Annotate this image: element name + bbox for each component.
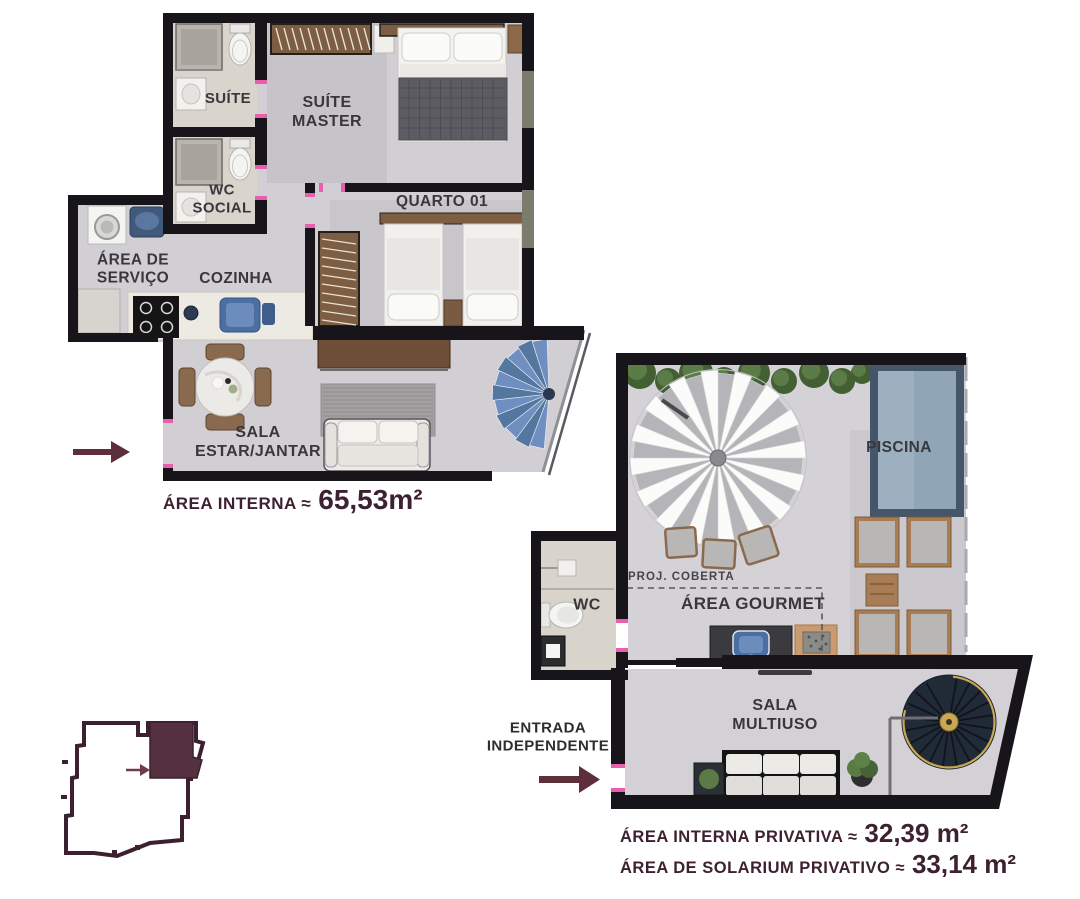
room-label-suite-master: SUÍTE MASTER xyxy=(292,94,362,132)
pillow xyxy=(402,33,450,61)
area-value: 65,53m² xyxy=(318,484,422,516)
pillow xyxy=(454,33,502,61)
room-label-area-gourmet: ÁREA GOURMET xyxy=(681,594,825,614)
label-line: ÁREA DE xyxy=(97,252,169,270)
door-threshold xyxy=(758,670,812,675)
area-label: ÁREA DE SOLARIUM PRIVATIVO ≈ xyxy=(620,859,905,878)
label-line: ENTRADA xyxy=(487,719,609,737)
plan1-apartment xyxy=(68,13,590,481)
pot xyxy=(184,306,198,320)
lounger-cushion xyxy=(859,521,895,563)
lounger-cushion xyxy=(859,614,895,654)
room-label-quarto: QUARTO 01 xyxy=(396,193,488,211)
plate xyxy=(212,377,224,389)
table-plant xyxy=(229,385,238,394)
label-line: SERVIÇO xyxy=(97,270,169,288)
toilet-tank xyxy=(230,24,250,33)
bed-blanket xyxy=(387,238,440,290)
shower-tray xyxy=(181,144,217,180)
plan2-entry-arrow right-arrow-icon xyxy=(539,766,600,793)
label-line: ESTAR/JANTAR xyxy=(195,443,321,462)
stair-pole-cap xyxy=(946,719,952,725)
toilet-tank xyxy=(230,139,250,148)
floorplan-poster: SUÍTE SUÍTE MASTER WC SOCIAL QUARTO 01 Á… xyxy=(0,0,1080,899)
area-label: ÁREA INTERNA ≈ xyxy=(163,494,311,514)
area-value: 33,14 m² xyxy=(912,849,1016,880)
label-proj-coberta: PROJ. COBERTA xyxy=(628,571,735,583)
label-line: SOCIAL xyxy=(192,199,251,217)
sheet-fold xyxy=(400,64,506,78)
cooktop xyxy=(133,296,179,338)
shower-tray xyxy=(181,29,217,65)
sink xyxy=(558,560,576,576)
room-label-area-servico: ÁREA DE SERVIÇO xyxy=(97,252,169,289)
sink-basin xyxy=(226,303,254,327)
dining-chair xyxy=(255,368,271,406)
kettle xyxy=(262,303,275,325)
label-line: SUÍTE xyxy=(292,94,362,113)
cabinet xyxy=(78,289,120,333)
table-plant xyxy=(699,769,719,789)
label-line: SALA xyxy=(195,424,321,443)
sink-basin xyxy=(182,84,200,104)
sofa-arm xyxy=(417,423,429,467)
room-label-wc2: WC xyxy=(573,597,600,616)
room-label-sala-multiuso: SALA MULTIUSO xyxy=(732,697,818,735)
area-value: 32,39 m² xyxy=(864,818,968,849)
sofa-cushion xyxy=(338,421,377,443)
plan1-area-measurement: ÁREA INTERNA ≈ 65,53m² xyxy=(163,484,423,516)
room-label-suite: SUÍTE xyxy=(205,90,251,108)
tank-basin xyxy=(135,212,159,230)
chair xyxy=(702,539,735,569)
room-label-cozinha: COZINHA xyxy=(199,270,272,288)
plan2-area-measurement-2: ÁREA DE SOLARIUM PRIVATIVO ≈ 33,14 m² xyxy=(620,849,1016,880)
area-label: ÁREA INTERNA PRIVATIVA ≈ xyxy=(620,828,857,847)
plan1-entry-arrow right-arrow-icon xyxy=(73,441,130,463)
lounger-cushion xyxy=(911,521,947,563)
label-line: MULTIUSO xyxy=(732,716,818,735)
nightstand xyxy=(444,300,462,326)
bowl xyxy=(225,378,231,384)
lounger-cushion xyxy=(911,614,947,654)
dining-table xyxy=(196,358,254,416)
pillow xyxy=(467,294,518,320)
label-entrada-independente: ENTRADA INDEPENDENTE xyxy=(487,719,609,754)
plan2-area-measurement-1: ÁREA INTERNA PRIVATIVA ≈ 32,39 m² xyxy=(620,818,968,849)
label-line: SALA xyxy=(732,697,818,716)
grill-grate xyxy=(803,632,830,653)
sofa-seat xyxy=(338,445,418,466)
umbrella-hub xyxy=(710,450,726,466)
sofa-arm xyxy=(325,423,337,467)
label-line: WC xyxy=(192,181,251,199)
plant xyxy=(854,752,870,768)
keyplan xyxy=(61,722,203,856)
bed-blanket xyxy=(466,238,519,290)
label-line: MASTER xyxy=(292,113,362,132)
label-line: INDEPENDENTE xyxy=(487,737,609,755)
side-table xyxy=(866,574,898,606)
washer-drum xyxy=(101,221,114,234)
cozinha-fixtures xyxy=(128,292,313,340)
sofa-cushion xyxy=(379,421,418,443)
chair xyxy=(665,527,697,558)
room-label-piscina: PISCINA xyxy=(866,439,932,457)
gourmet-counter xyxy=(710,625,837,660)
shower-drain xyxy=(546,644,560,658)
dining-chair xyxy=(179,368,195,406)
room-label-wc-social: WC SOCIAL xyxy=(192,181,251,216)
sink-basin xyxy=(739,636,763,653)
stair-pole xyxy=(543,388,555,400)
pillow xyxy=(388,294,439,320)
headboard-shelf xyxy=(380,213,524,224)
tv-cabinet xyxy=(318,337,450,368)
room-label-sala: SALA ESTAR/JANTAR xyxy=(195,424,321,462)
blanket xyxy=(399,78,507,140)
